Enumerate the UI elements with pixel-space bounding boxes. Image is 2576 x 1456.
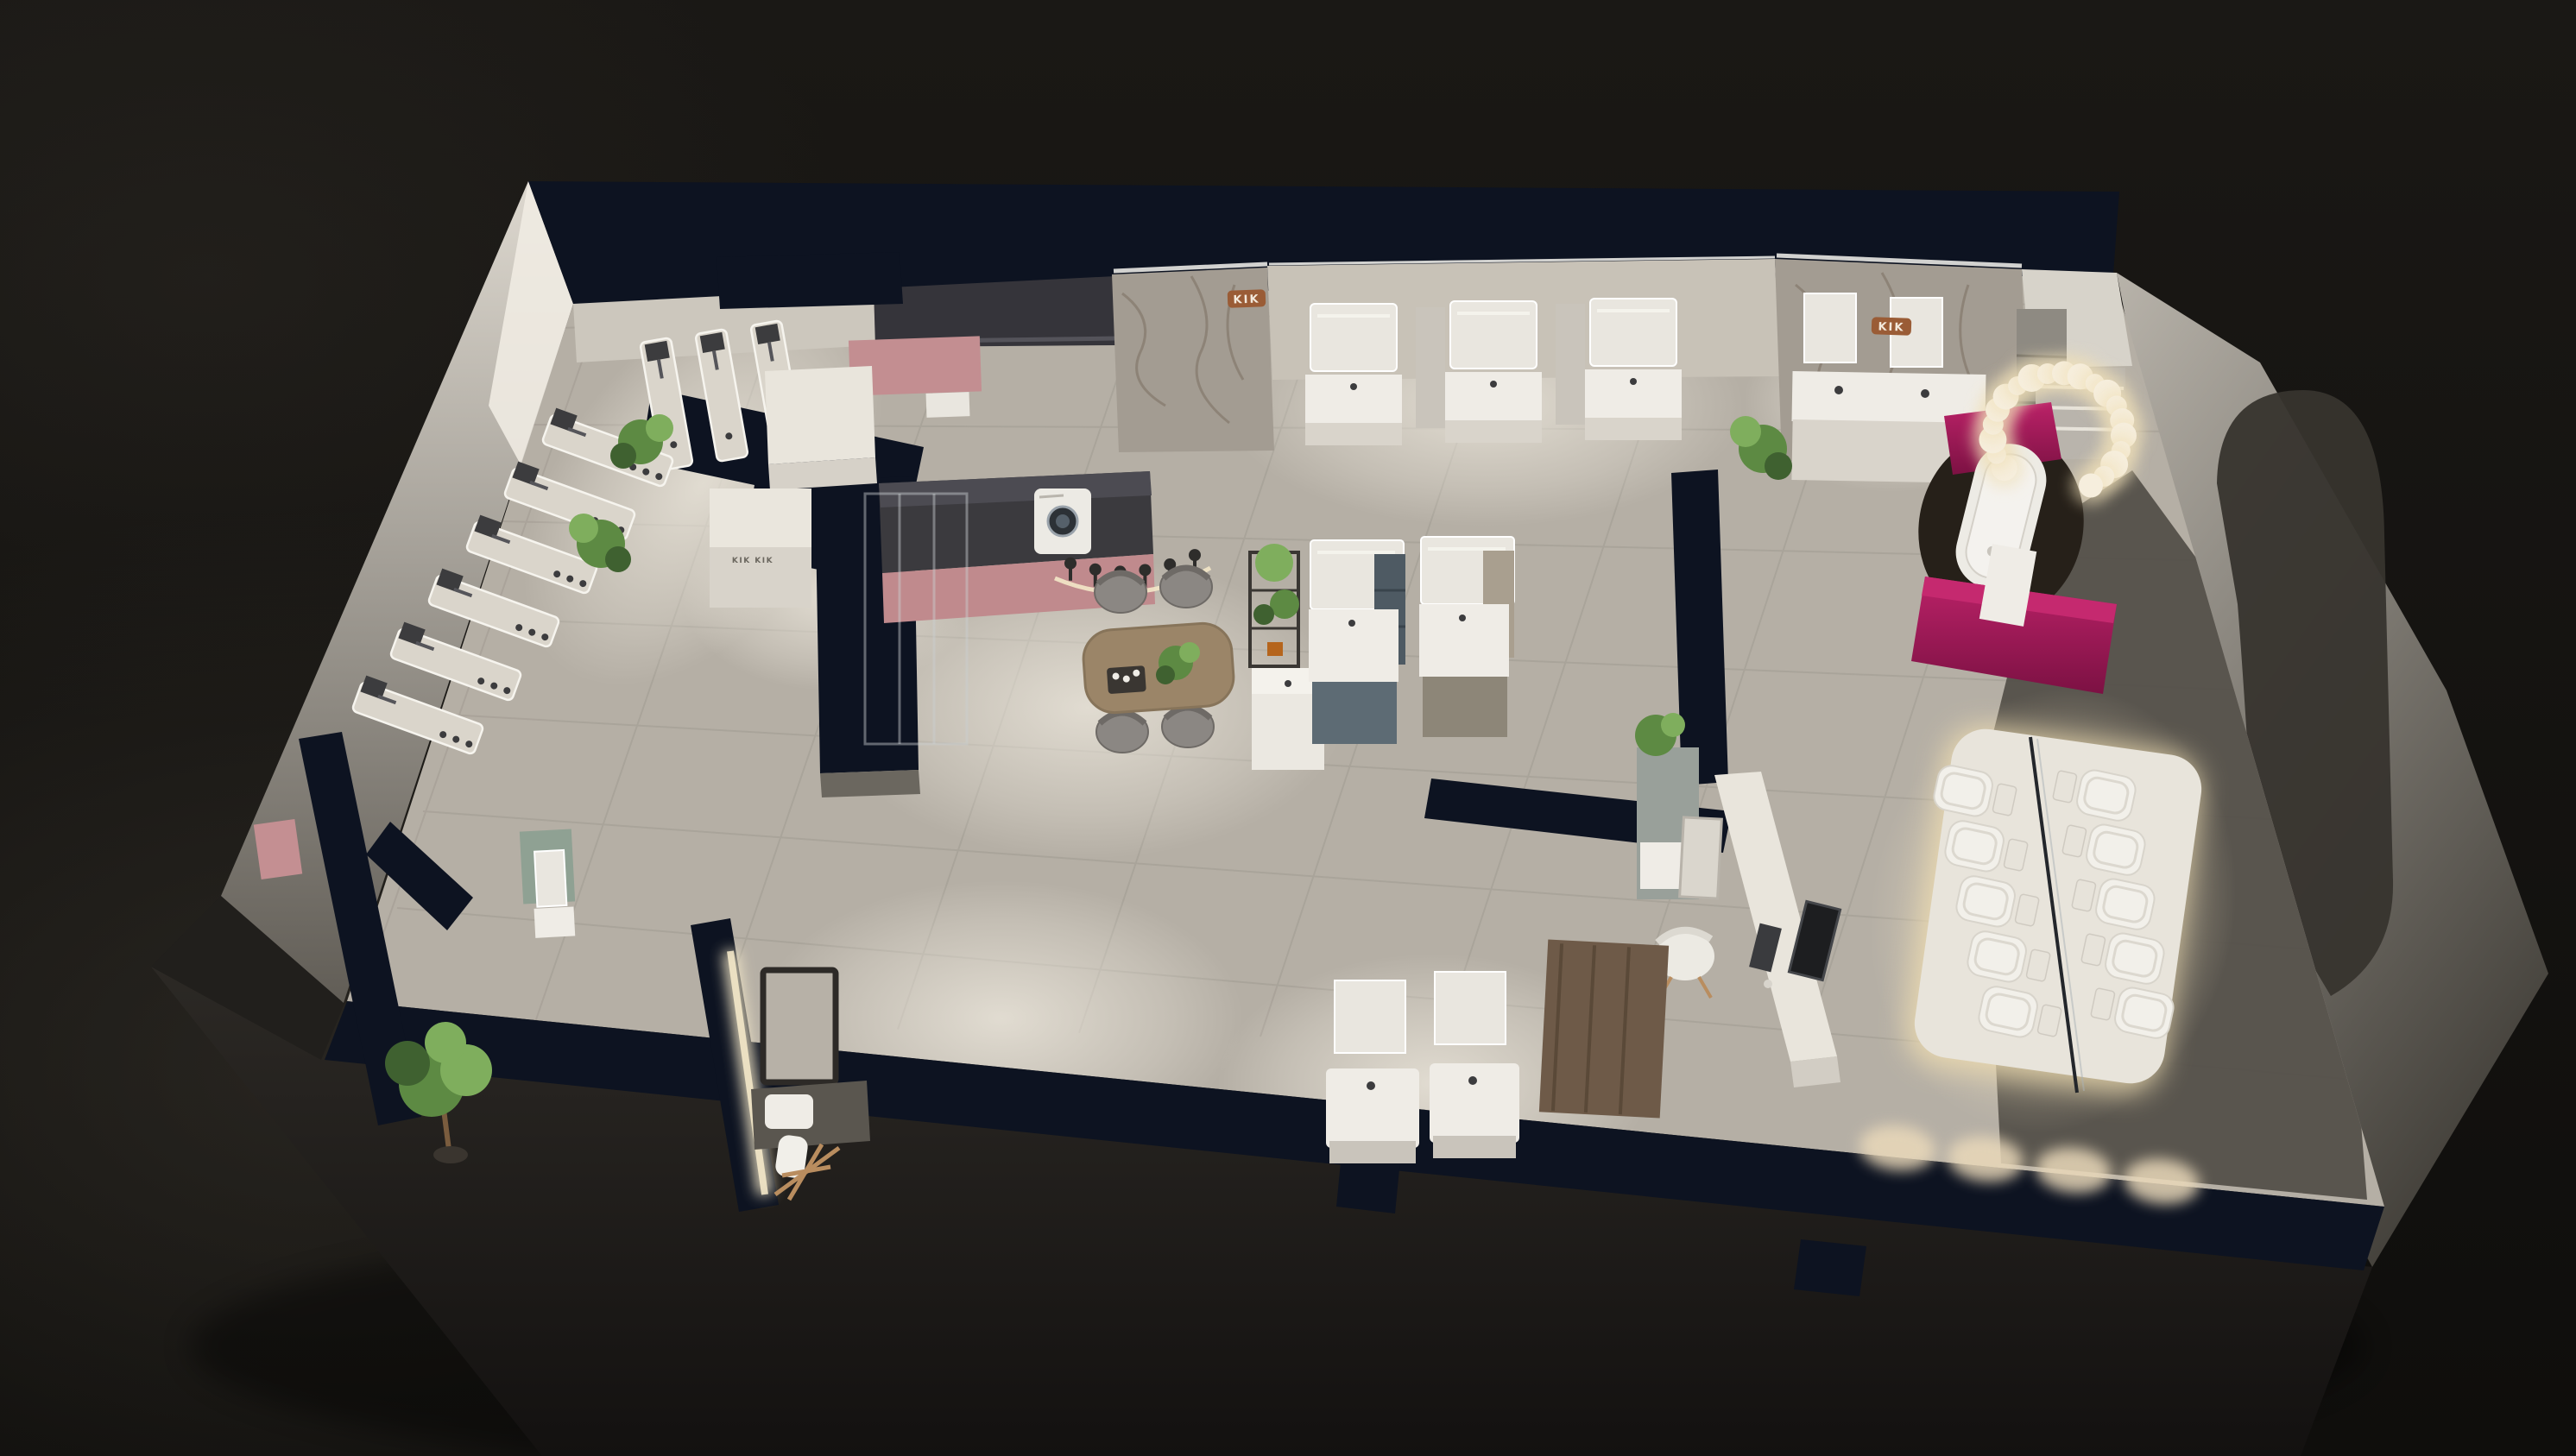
shelf-tower-2 [1556,304,1585,425]
vanity-unit [1585,299,1682,440]
logo-text-A: KIK [1233,293,1260,306]
hanging-fixture [1089,564,1102,576]
meeting-table [1082,621,1235,715]
partition-slab-north [717,252,903,309]
cabinet-front [1305,423,1402,445]
logo-text-B: KIK [1878,320,1904,334]
reception-counter-north [765,366,877,490]
partition-stub-2 [1794,1239,1866,1296]
pink-accent-wall [254,819,302,879]
washing-machine [1034,488,1091,554]
laundry-sink [926,392,970,418]
vanity-beige-unit [1419,537,1514,737]
faucet [1490,381,1497,388]
vanity-unit [1305,304,1402,445]
faucet [1630,378,1637,385]
vanity-mirror [1310,304,1397,371]
faucet [1350,383,1357,390]
side-table [1680,817,1722,898]
vanity-blue-unit [1309,540,1405,744]
hanging-fixture [1139,564,1151,576]
basin [1445,372,1542,422]
logo-marble-B: KIK [1872,317,1912,336]
cabinet-front [1445,420,1542,443]
vanity-unit [1445,301,1542,443]
light-ball [2079,474,2103,498]
render-stage: KIK KIK [0,0,2576,1456]
black-frame-mirror [763,970,836,1082]
shelf-tower-1 [1416,307,1445,428]
vanity-gallery-north [1305,299,1682,445]
brand-counter: KIK KIK [710,488,811,608]
hanging-fixture [1189,549,1201,561]
chair [1160,566,1212,608]
basin [1305,375,1402,425]
counter-brand-text: KIK KIK [732,557,773,565]
toilet-display-platform [1901,721,2207,1099]
hanging-fixture [1064,558,1076,570]
chair [1096,711,1148,753]
logo-marble-A: KIK [1228,289,1266,308]
basin [1585,369,1682,419]
floorplan-render: KIK KIK [0,0,2576,1456]
wood-divider-panel [1539,939,1669,1118]
chair [1162,706,1214,747]
vanity-mirror [1590,299,1676,366]
cabinet-front [1585,418,1682,440]
mirror-left [1804,293,1856,362]
mouse [1764,980,1772,988]
partition-center-face [820,770,920,797]
vanity-mirror [1450,301,1537,369]
chair [1095,571,1146,613]
back-wall-charcoal-nook [874,276,1117,347]
